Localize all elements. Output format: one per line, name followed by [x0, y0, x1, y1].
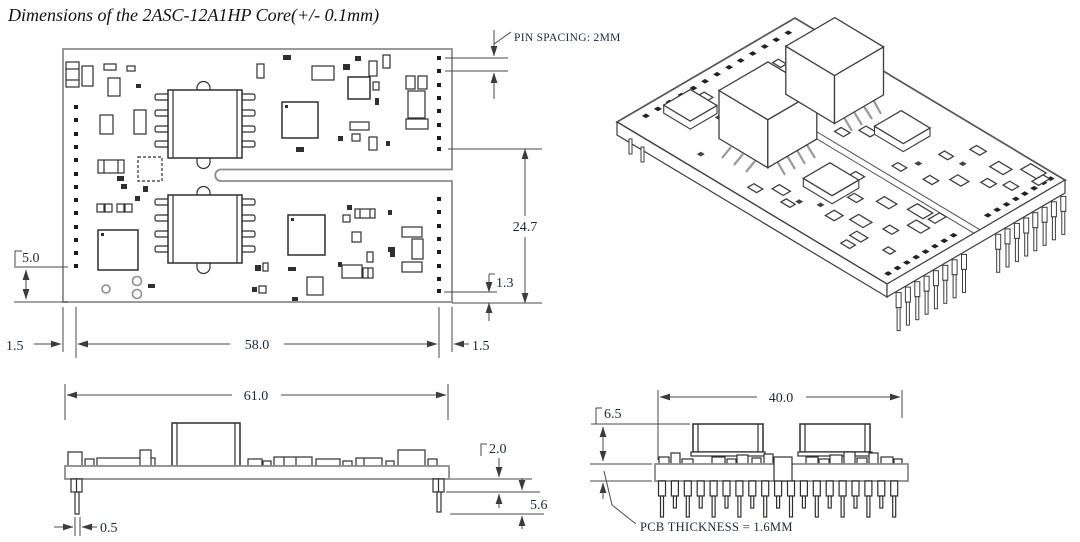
dim-2-0: 2.0 [489, 442, 507, 457]
end-transformers [691, 424, 872, 456]
front-components [68, 423, 437, 466]
iso-view [617, 18, 1066, 331]
front-view: 61.0 0.5 [54, 384, 548, 536]
page-title: Dimensions of the 2ASC-12A1HP Core(+/- 0… [7, 5, 379, 26]
top-view: PIN SPACING: 2MM 24.7 1.3 5.0 [6, 30, 621, 358]
transformer-top-1 [155, 82, 255, 169]
end-slot-notch [774, 457, 792, 481]
front-dim-standoff: 2.0 5.6 [446, 442, 548, 529]
end-pins [659, 481, 898, 517]
iso-pin-left-a [629, 139, 632, 154]
dim-61-0: 61.0 [244, 389, 269, 404]
end-view: 40.0 6.5 [590, 390, 908, 534]
dimension-drawing: Dimensions of the 2ASC-12A1HP Core(+/- 0… [0, 0, 1080, 542]
dim-1-5-right: 1.5 [472, 339, 490, 354]
front-pcb-bar [65, 466, 449, 479]
pcb-thickness-leader [604, 471, 636, 524]
dim-1-5-left: 1.5 [6, 339, 24, 354]
dim-24-7: 24.7 [513, 220, 538, 235]
dim-5-6: 5.6 [530, 498, 548, 513]
drawing-canvas: Dimensions of the 2ASC-12A1HP Core(+/- 0… [0, 0, 1080, 542]
front-dim-pin-width: 0.5 [54, 517, 118, 536]
dim-1-3: 1.3 [496, 276, 514, 291]
pcb-thickness-label: PCB THICKNESS = 1.6MM [640, 520, 793, 534]
pin-spacing-label: PIN SPACING: 2MM [514, 32, 621, 44]
dim-0-5: 0.5 [100, 521, 118, 536]
dim-58-0: 58.0 [245, 338, 270, 353]
dim-5-0: 5.0 [22, 251, 40, 266]
dim-40-0: 40.0 [769, 391, 794, 406]
iso-pin-left-b [641, 147, 644, 162]
dim-6-5: 6.5 [604, 407, 622, 422]
front-pins [71, 479, 444, 514]
transformer-top-2 [155, 187, 255, 274]
